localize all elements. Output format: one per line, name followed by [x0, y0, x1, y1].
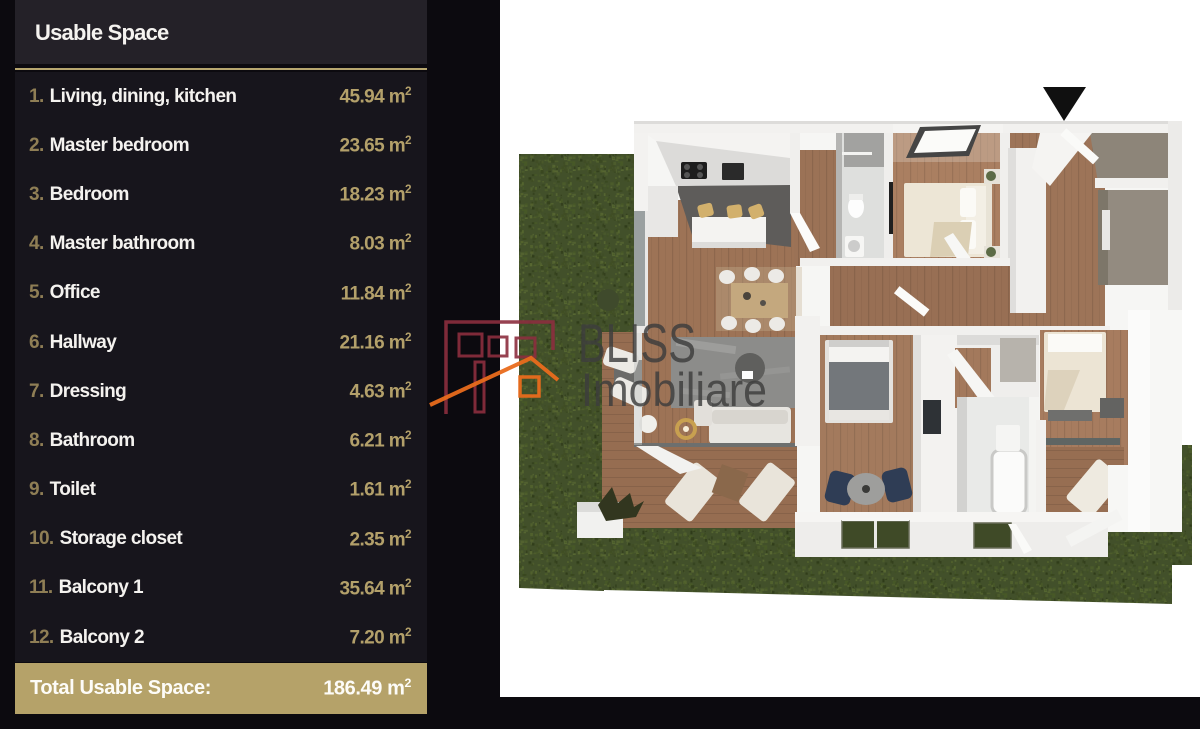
svg-text:Imobiliare: Imobiliare — [581, 363, 767, 416]
